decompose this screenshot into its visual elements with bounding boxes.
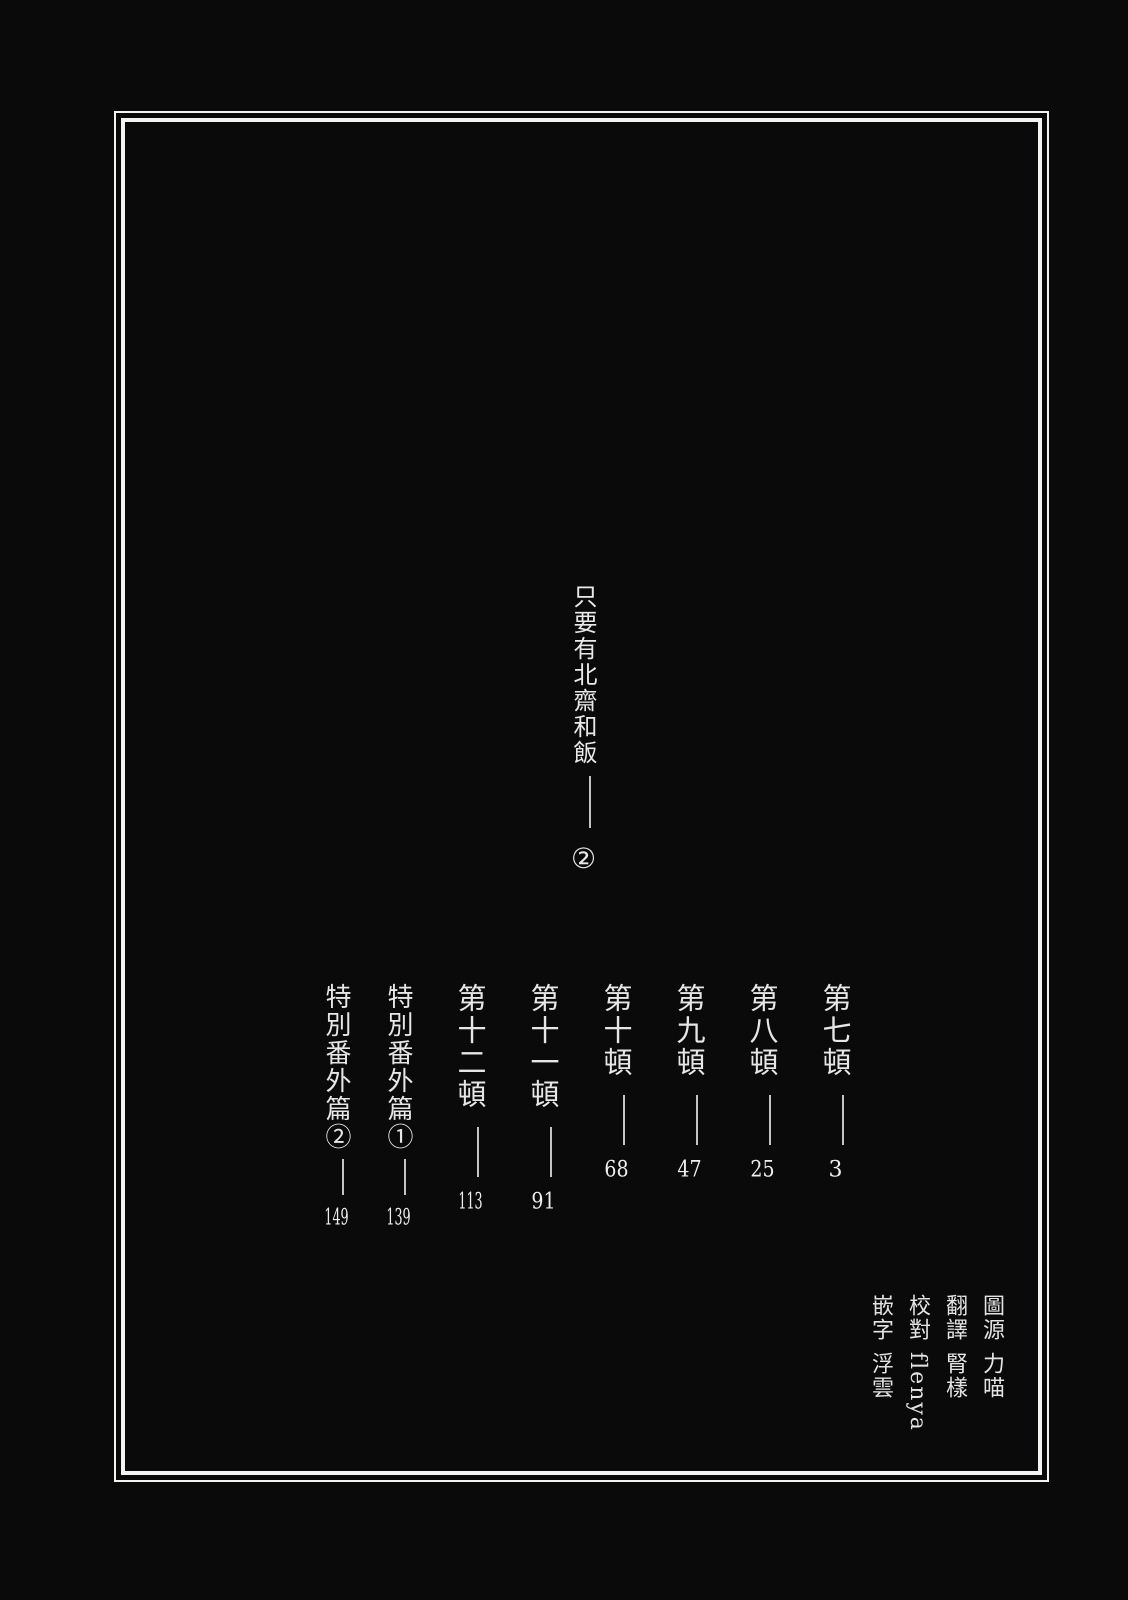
chapter-label: 第十一頓 (526, 983, 560, 1111)
credit-name: 浮雲 (868, 1352, 893, 1400)
toc-entry: 第七頓3 (818, 983, 852, 1229)
toc-entry: 第八頓25 (745, 983, 779, 1229)
chapter-label: 第十二頓 (453, 983, 487, 1111)
toc-entry: 第九頓47 (672, 983, 706, 1229)
chapter-label: 第十頓 (599, 983, 633, 1079)
credit-role: 校對 (905, 1294, 930, 1342)
page-number: 25 (750, 1159, 775, 1181)
leader-line (550, 1127, 552, 1177)
credit-item: 圖源力喵 (979, 1294, 1003, 1432)
credit-role: 嵌字 (868, 1294, 893, 1342)
title-leader-line (589, 776, 591, 828)
page-number: 3 (823, 1159, 848, 1181)
credit-item: 嵌字浮雲 (868, 1294, 892, 1432)
credit-name: 力喵 (979, 1352, 1004, 1400)
credit-item: 校對flenya (905, 1294, 929, 1432)
chapter-label: 第八頓 (745, 983, 779, 1079)
credits: 圖源力喵 翻譯腎樣 校對flenya 嵌字浮雲 (855, 1294, 1003, 1432)
leader-line (477, 1127, 479, 1177)
book-title-text: 只要有北齋和飯 (569, 584, 597, 766)
toc-entry: 第十一頓91 (526, 983, 560, 1229)
volume-number: ② (567, 842, 600, 875)
leader-line (404, 1159, 406, 1195)
table-of-contents: 第七頓3 第八頓25 第九頓47 第十頓68 第十一頓91 第十二頓113 特別… (290, 983, 852, 1229)
chapter-label: 特別番外篇① (383, 983, 413, 1151)
page-number: 47 (677, 1159, 702, 1181)
credit-name: flenya (905, 1352, 930, 1432)
chapter-label: 第九頓 (672, 983, 706, 1079)
leader-line (769, 1095, 771, 1145)
leader-line (623, 1095, 625, 1145)
book-title: 只要有北齋和飯② (567, 584, 599, 875)
chapter-label: 特別番外篇② (321, 983, 351, 1151)
page-number: 68 (604, 1159, 629, 1181)
leader-line (342, 1159, 344, 1195)
toc-entry: 特別番外篇①139 (382, 983, 414, 1229)
credit-role: 翻譯 (942, 1294, 967, 1342)
leader-line (696, 1095, 698, 1145)
page-number: 139 (386, 1207, 411, 1229)
toc-entry: 第十二頓113 (453, 983, 487, 1229)
credit-item: 翻譯腎樣 (942, 1294, 966, 1432)
page-number: 91 (531, 1191, 556, 1213)
credit-name: 腎樣 (942, 1352, 967, 1400)
page-number: 149 (324, 1207, 349, 1229)
credit-role: 圖源 (979, 1294, 1004, 1342)
toc-entry: 第十頓68 (599, 983, 633, 1229)
page-number: 113 (458, 1191, 483, 1213)
toc-entry: 特別番外篇②149 (320, 983, 352, 1229)
leader-line (842, 1095, 844, 1145)
chapter-label: 第七頓 (818, 983, 852, 1079)
